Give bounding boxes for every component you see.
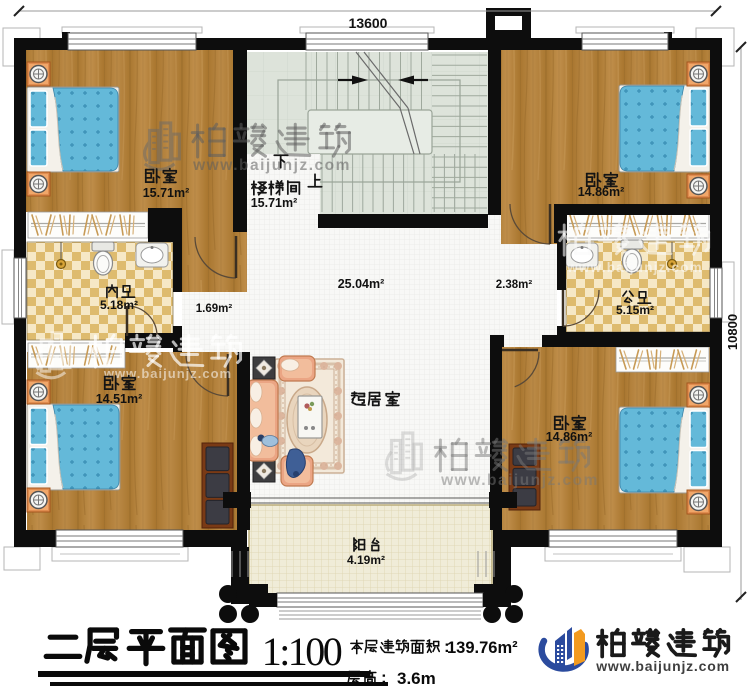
svg-text:13600: 13600 — [349, 15, 388, 31]
svg-text:1:100: 1:100 — [262, 629, 342, 674]
svg-text:www.baijunjz.com: www.baijunjz.com — [595, 658, 730, 674]
svg-text:14.86m²: 14.86m² — [578, 185, 625, 199]
svg-text::: : — [381, 668, 387, 687]
svg-text:5.15m²: 5.15m² — [616, 303, 654, 317]
svg-text:1.69m²: 1.69m² — [196, 303, 233, 315]
svg-text:15.71m²: 15.71m² — [251, 196, 298, 210]
svg-text:5.18m²: 5.18m² — [100, 298, 138, 312]
svg-text:3.6m: 3.6m — [397, 669, 436, 688]
svg-text:25.04m²: 25.04m² — [338, 277, 385, 291]
svg-text:4.19m²: 4.19m² — [347, 553, 385, 567]
svg-text:10800: 10800 — [725, 314, 740, 350]
svg-text:www.baijunjz.com: www.baijunjz.com — [192, 157, 351, 174]
svg-text:www.baijunjz.com: www.baijunjz.com — [566, 260, 703, 275]
svg-text:139.76m²: 139.76m² — [447, 639, 518, 657]
svg-text:www.baijunjz.com: www.baijunjz.com — [440, 472, 599, 489]
svg-text:14.86m²: 14.86m² — [546, 430, 593, 444]
svg-text:2.38m²: 2.38m² — [496, 279, 533, 291]
svg-text:15.71m²: 15.71m² — [143, 186, 190, 200]
svg-text:14.51m²: 14.51m² — [96, 392, 143, 406]
